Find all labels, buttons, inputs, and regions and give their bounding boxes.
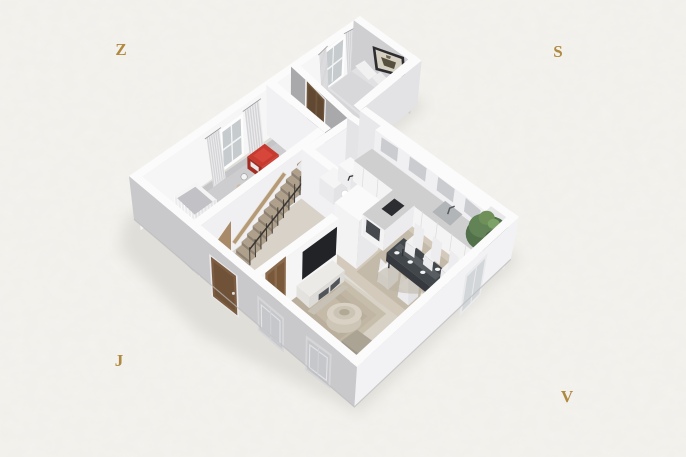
- svg-text:S: S: [553, 42, 562, 61]
- svg-text:J: J: [115, 351, 124, 370]
- svg-text:Z: Z: [115, 40, 126, 59]
- svg-text:V: V: [561, 387, 574, 406]
